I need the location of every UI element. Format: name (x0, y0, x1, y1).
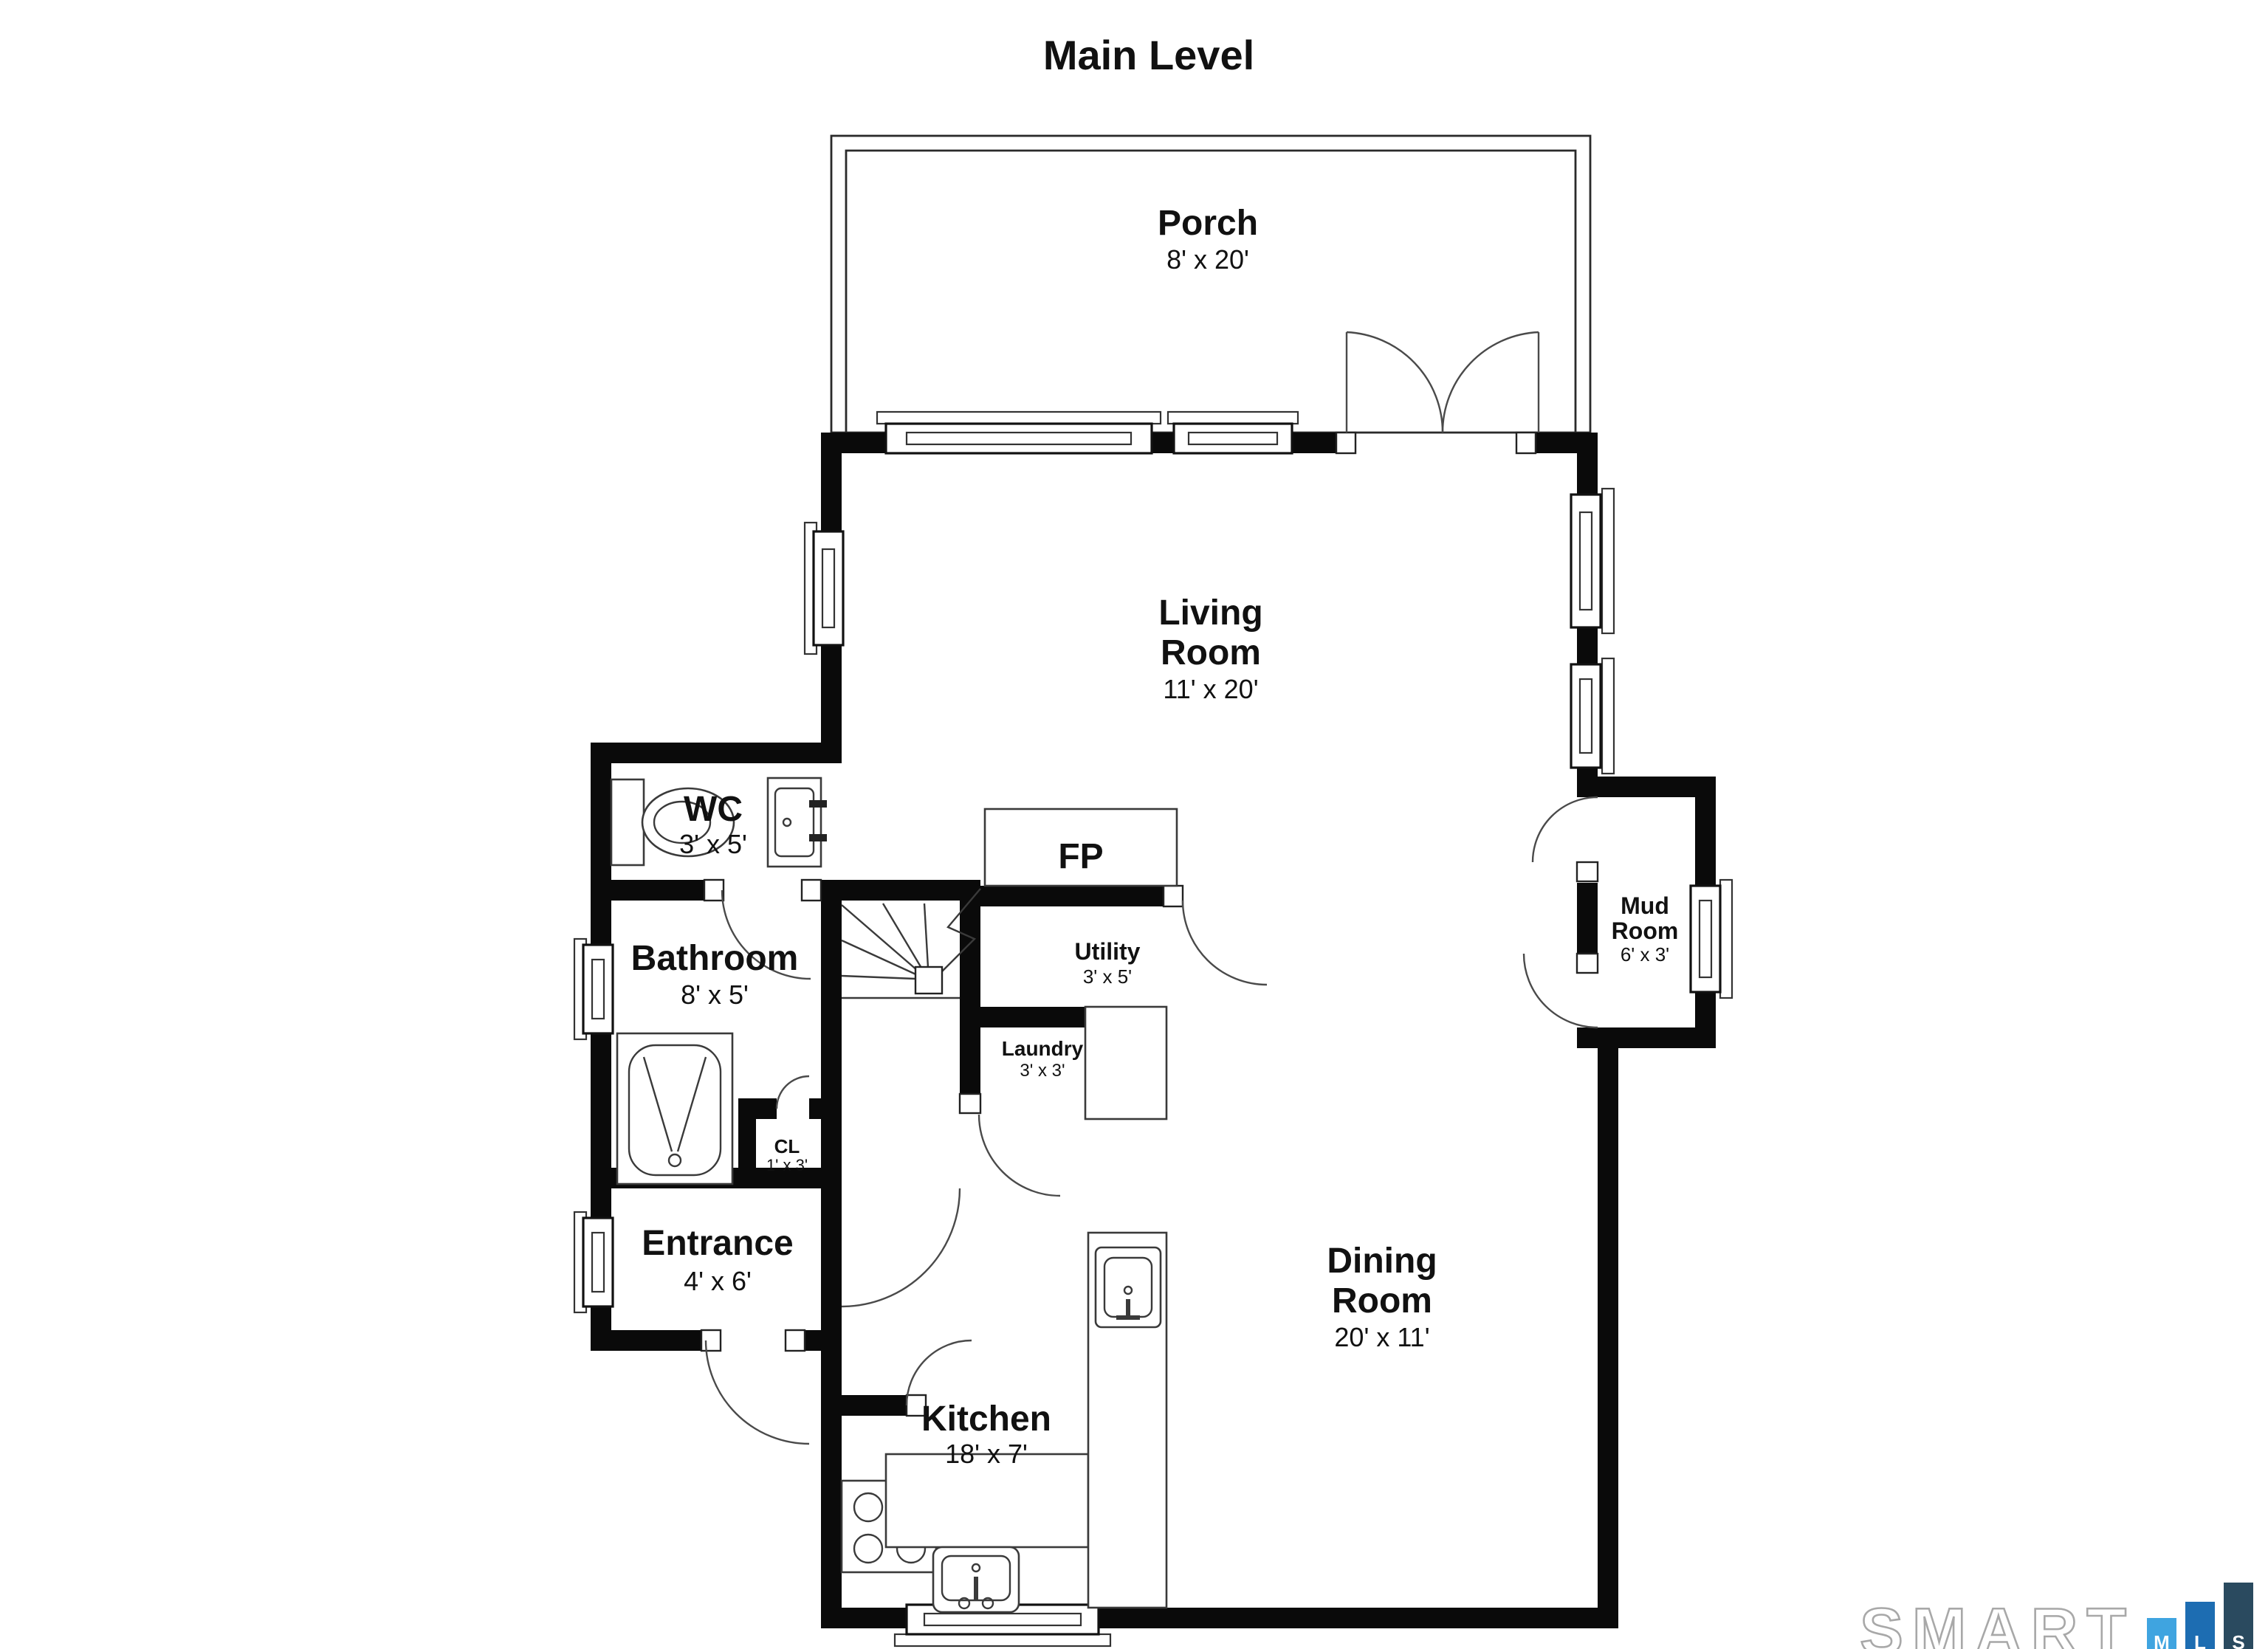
porch-inner-wall (846, 151, 1575, 433)
entrance-label: Entrance (642, 1224, 793, 1263)
page-title: Main Level (1043, 32, 1254, 78)
wc-sink-tap (809, 800, 827, 808)
staircase (842, 889, 980, 998)
french-door-jamb (1336, 433, 1355, 453)
fireplace: FP (985, 809, 1177, 886)
kitchen-label: Kitchen (921, 1400, 1051, 1439)
mudroom-door-jamb (1577, 954, 1598, 973)
laundry-dims: 3' x 3' (1020, 1061, 1065, 1081)
mud-room-dims: 6' x 3' (1621, 943, 1669, 965)
porch-label: Porch (1158, 204, 1258, 243)
window (574, 1212, 613, 1312)
laundry-label: Laundry (1002, 1037, 1084, 1060)
prep-faucet (1126, 1299, 1130, 1317)
front-door-jamb (786, 1330, 805, 1351)
french-door-jamb (1516, 433, 1536, 453)
bathroom-dims: 8' x 5' (681, 980, 749, 1010)
floor-plan-page: Main Level Porch 8' x 20' (0, 0, 2268, 1649)
front-door-arc (706, 1340, 809, 1444)
entrance-dims: 4' x 6' (684, 1266, 752, 1296)
kitchen-fixtures (842, 1007, 1166, 1612)
front-door-jamb (701, 1330, 721, 1351)
logo-letter-m: M (2154, 1631, 2170, 1649)
bathroom-door-jamb (704, 880, 724, 901)
cabinet (1085, 1007, 1166, 1119)
hall-door-arc (842, 1188, 960, 1307)
dining-room-label-1: Dining (1327, 1242, 1437, 1281)
utility-dims: 3' x 5' (1083, 965, 1132, 988)
porch: Porch 8' x 20' (831, 136, 1590, 433)
closet-door-arc (777, 1076, 809, 1109)
fireplace-label: FP (1058, 837, 1103, 876)
bathroom-fixtures (617, 1033, 732, 1184)
mud-room-label-2: Room (1612, 918, 1679, 944)
window (1571, 658, 1614, 774)
dining-room-dims: 20' x 11' (1334, 1322, 1429, 1352)
laundry-door-jamb (960, 1094, 980, 1113)
bathroom-door-jamb (802, 880, 821, 901)
wc-label: WC (684, 790, 743, 829)
window (805, 523, 843, 654)
window (1691, 880, 1732, 998)
porch-outer-wall (831, 136, 1590, 433)
mud-room-label-1: Mud (1621, 892, 1669, 919)
utility-door-jamb (1164, 886, 1183, 906)
closet-dims: 1' x 3' (766, 1156, 808, 1174)
logo-word: SMART (1860, 1594, 2135, 1649)
floor-plan-svg: Main Level Porch 8' x 20' (0, 0, 2268, 1649)
mudroom-upper-door-arc (1533, 797, 1598, 862)
wc-dims: 3' x 5' (679, 829, 747, 859)
window (1168, 412, 1298, 453)
french-door (1347, 332, 1539, 433)
window (1571, 489, 1614, 633)
logo-letter-l: L (2194, 1631, 2206, 1649)
living-room-label-2: Room (1161, 633, 1261, 672)
mudroom-door-jamb (1577, 862, 1598, 881)
stair-newel-post (915, 967, 942, 994)
kitchen-dims: 18' x 7' (945, 1439, 1028, 1469)
utility-door-arc (1183, 901, 1267, 985)
kitchen-faucet (974, 1577, 978, 1600)
living-room-dims: 11' x 20' (1163, 674, 1258, 704)
window (877, 412, 1161, 453)
wc-sink-tap (809, 834, 827, 841)
living-room-label-1: Living (1158, 593, 1262, 633)
dining-room-label-2: Room (1332, 1281, 1432, 1321)
closet-label: CL (774, 1135, 800, 1157)
smartmls-logo: SMART M L S (1860, 1583, 2253, 1649)
logo-letter-s: S (2232, 1631, 2244, 1649)
bathroom-label: Bathroom (631, 939, 799, 978)
porch-dims: 8' x 20' (1166, 244, 1249, 275)
laundry-door-arc (979, 1115, 1060, 1196)
toilet-tank (611, 779, 644, 865)
utility-label: Utility (1075, 938, 1141, 965)
window (574, 939, 613, 1039)
